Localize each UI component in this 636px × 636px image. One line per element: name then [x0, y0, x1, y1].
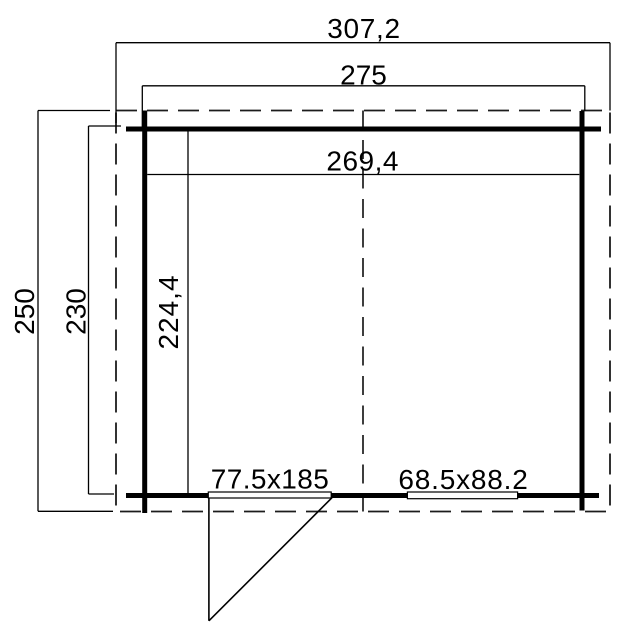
- svg-text:68.5x88.2: 68.5x88.2: [398, 464, 528, 495]
- svg-text:269,4: 269,4: [326, 145, 399, 176]
- svg-text:77.5x185: 77.5x185: [211, 464, 329, 495]
- svg-text:307,2: 307,2: [327, 13, 401, 44]
- svg-text:250: 250: [9, 288, 40, 335]
- svg-text:224,4: 224,4: [153, 274, 184, 349]
- svg-text:275: 275: [340, 60, 387, 91]
- svg-text:230: 230: [61, 288, 92, 335]
